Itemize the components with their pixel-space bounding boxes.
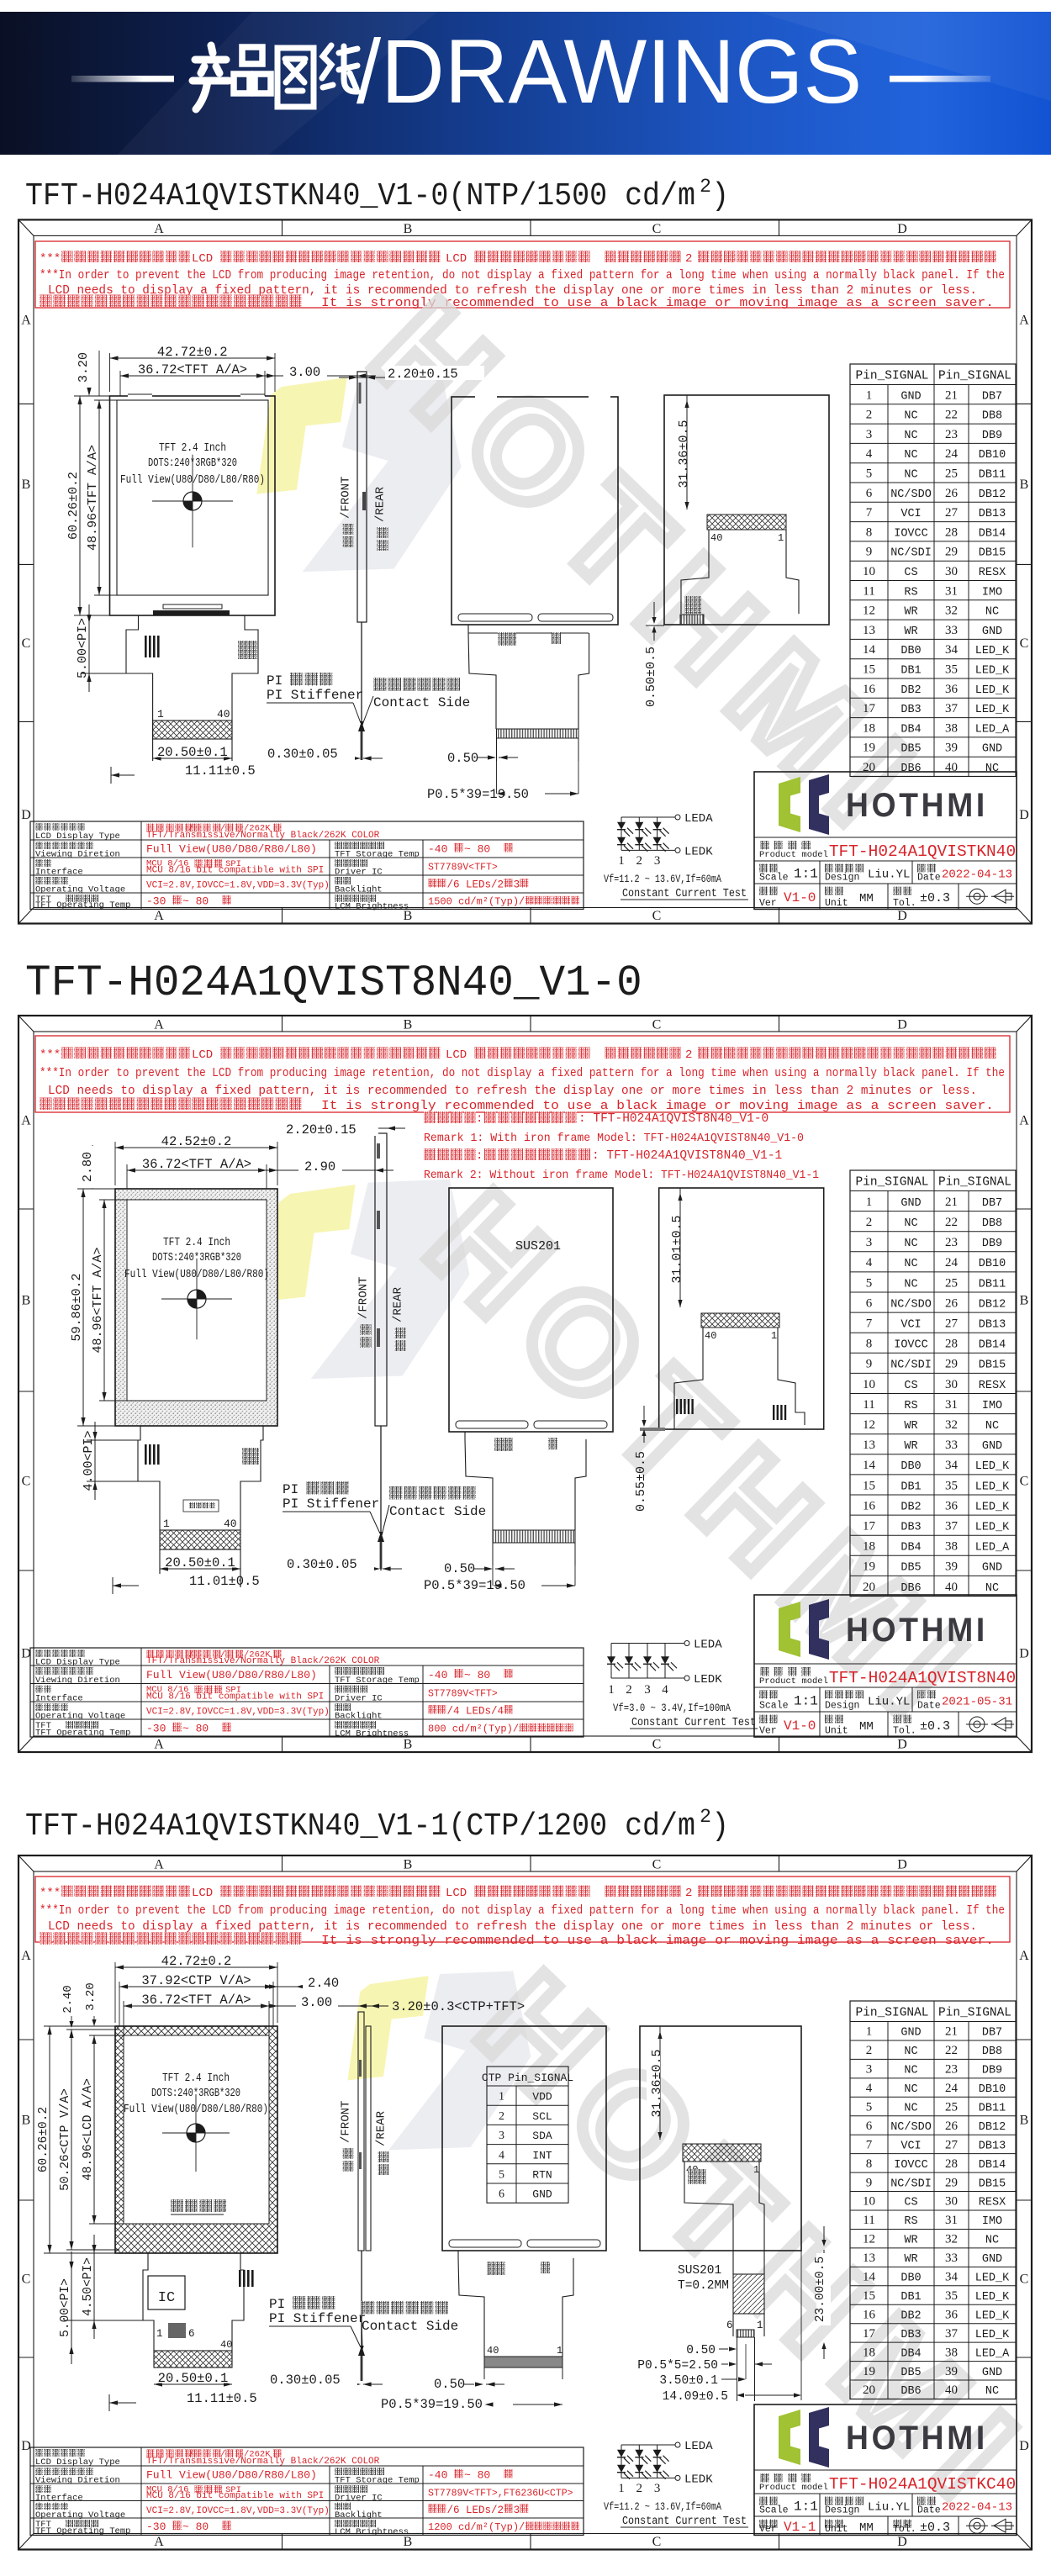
svg-text:B: B <box>404 1738 413 1752</box>
svg-text:B: B <box>22 2114 31 2128</box>
svg-text:MM: MM <box>859 2521 874 2535</box>
svg-text:2: 2 <box>685 252 692 266</box>
svg-text:INT: INT <box>532 2149 552 2162</box>
svg-text:GND: GND <box>982 743 1002 756</box>
svg-text:WR: WR <box>904 1440 917 1453</box>
svg-text:): ) <box>711 178 729 214</box>
svg-text:35: 35 <box>945 662 958 676</box>
svg-text:Product model: Product model <box>759 1676 828 1687</box>
svg-text:VCI: VCI <box>900 2140 921 2152</box>
svg-text:0.30±0.05: 0.30±0.05 <box>270 2373 341 2388</box>
svg-text:8: 8 <box>866 1338 873 1351</box>
svg-text:35: 35 <box>945 1479 958 1492</box>
svg-text:4: 4 <box>866 1256 873 1270</box>
svg-text:NC: NC <box>904 2083 917 2096</box>
svg-text::: : <box>476 1149 483 1163</box>
svg-text:DB2: DB2 <box>900 1501 921 1513</box>
svg-text:13: 13 <box>863 1438 875 1452</box>
svg-text:42.72±0.2: 42.72±0.2 <box>157 345 228 360</box>
svg-text:MM: MM <box>859 892 874 905</box>
svg-text:TFT 2.4 Inch: TFT 2.4 Inch <box>163 1236 230 1249</box>
svg-text:DB15: DB15 <box>979 547 1006 560</box>
svg-text:DB0: DB0 <box>900 2272 921 2285</box>
svg-text:28: 28 <box>945 1338 958 1351</box>
svg-text:LCM Brightness: LCM Brightness <box>335 1729 409 1739</box>
svg-text:Operating Voltage: Operating Voltage <box>35 2510 125 2521</box>
svg-text:36.72<TFT A/A>: 36.72<TFT A/A> <box>142 1157 251 1172</box>
svg-text:TFT/Transmissive/Normally Blac: TFT/Transmissive/Normally Black/262K COL… <box>146 1656 380 1666</box>
svg-text:28: 28 <box>945 525 958 539</box>
svg-text:D: D <box>21 2439 31 2453</box>
svg-text:A: A <box>154 2535 164 2549</box>
svg-text:IOVCC: IOVCC <box>894 1339 928 1352</box>
svg-text:LED_K: LED_K <box>975 1521 1010 1533</box>
svg-text:NC: NC <box>985 1582 999 1595</box>
svg-text:31: 31 <box>945 2214 958 2227</box>
svg-text:SUS201: SUS201 <box>515 1239 561 1254</box>
svg-text:3.00: 3.00 <box>289 365 320 380</box>
svg-text:TFT-H024A1QVIST8N40: TFT-H024A1QVIST8N40 <box>829 1669 1016 1687</box>
svg-text:D: D <box>21 808 31 822</box>
svg-text:LEDK: LEDK <box>684 2473 713 2486</box>
svg-text:B: B <box>22 478 31 492</box>
svg-text:25: 25 <box>945 2100 958 2114</box>
svg-text:Scale: Scale <box>759 873 789 884</box>
svg-text:23: 23 <box>945 428 958 441</box>
svg-text:2022-04-13: 2022-04-13 <box>942 2501 1012 2515</box>
svg-text:GND: GND <box>982 1440 1002 1453</box>
svg-text:Driver IC: Driver IC <box>335 1693 383 1703</box>
svg-text:0.50: 0.50 <box>434 2377 465 2392</box>
svg-text:21: 21 <box>945 388 958 402</box>
svg-text:11: 11 <box>863 1398 874 1412</box>
svg-text:1: 1 <box>557 2345 562 2357</box>
svg-text:35: 35 <box>945 2289 958 2303</box>
svg-text:Ver: Ver <box>759 2524 777 2535</box>
svg-text:RESX: RESX <box>979 1380 1006 1392</box>
svg-text:19: 19 <box>863 742 875 755</box>
svg-text:2: 2 <box>636 854 643 868</box>
svg-text:DB15: DB15 <box>979 2177 1006 2190</box>
svg-text:40: 40 <box>705 1330 716 1342</box>
svg-text:DB12: DB12 <box>979 2121 1006 2134</box>
svg-text:DB3: DB3 <box>900 1521 921 1533</box>
svg-text:31.36±0.5: 31.36±0.5 <box>650 2049 664 2117</box>
svg-text:LED_K: LED_K <box>975 684 1010 697</box>
svg-text:27: 27 <box>945 2138 959 2151</box>
svg-text:DB2: DB2 <box>900 684 921 697</box>
svg-text:NC: NC <box>904 430 917 442</box>
svg-text:DB5: DB5 <box>900 743 921 756</box>
svg-text:-40: -40 <box>428 1669 447 1681</box>
svg-text:8: 8 <box>866 525 873 539</box>
svg-text:26: 26 <box>945 1296 959 1310</box>
svg-text:Viewing Diretion: Viewing Diretion <box>35 850 120 860</box>
svg-text:38: 38 <box>945 721 958 735</box>
svg-text:Product model: Product model <box>759 2483 828 2493</box>
svg-text:3.00: 3.00 <box>301 1995 332 2010</box>
svg-text:***In order to prevent the LCD: ***In order to prevent the LCD from prod… <box>40 1066 1005 1080</box>
svg-text:6: 6 <box>866 2119 873 2133</box>
svg-text:Liu.YL: Liu.YL <box>868 868 910 882</box>
svg-text:2: 2 <box>685 1048 692 1062</box>
svg-text:ST7789V<TFT>: ST7789V<TFT> <box>428 1688 498 1699</box>
svg-text:TFT-H024A1QVIST8N40_V1-0: TFT-H024A1QVIST8N40_V1-0 <box>25 959 642 1009</box>
svg-text:/DRAWINGS: /DRAWINGS <box>356 21 862 123</box>
svg-text:/REAR: /REAR <box>375 2110 388 2146</box>
svg-text:VCI: VCI <box>900 1318 921 1331</box>
svg-text:LED_K: LED_K <box>975 1501 1010 1513</box>
svg-text:Constant Current Test: Constant Current Test <box>631 1717 756 1729</box>
svg-text:39: 39 <box>945 1560 958 1574</box>
svg-text:LED_K: LED_K <box>975 2329 1010 2341</box>
svg-text:20.50±0.1: 20.50±0.1 <box>158 2371 229 2386</box>
svg-text:Remark 2: Without iron frame M: Remark 2: Without iron frame Model: TFT-… <box>424 1169 819 1182</box>
svg-text:CTP Pin_SIGNAL: CTP Pin_SIGNAL <box>482 2072 573 2084</box>
svg-text:4: 4 <box>866 447 873 461</box>
svg-text:LCD: LCD <box>446 1048 467 1062</box>
svg-text:/6 LEDs/2: /6 LEDs/2 <box>447 879 504 891</box>
svg-text:5: 5 <box>866 2100 873 2114</box>
svg-text:NC: NC <box>904 1217 917 1230</box>
svg-text:B: B <box>404 1858 413 1872</box>
svg-text:1: 1 <box>757 2320 763 2331</box>
svg-text:A: A <box>21 313 31 327</box>
svg-text:C: C <box>652 222 662 236</box>
svg-text:LED_K: LED_K <box>975 1460 1010 1473</box>
svg-text:Ver: Ver <box>759 898 777 909</box>
svg-text:Design: Design <box>825 2505 859 2516</box>
svg-text:B: B <box>404 222 413 236</box>
svg-text:Pin_SIGNAL: Pin_SIGNAL <box>938 370 1011 383</box>
svg-text:±0.3: ±0.3 <box>920 2521 950 2535</box>
svg-text:2.80: 2.80 <box>81 1152 95 1182</box>
svg-text:: TFT-H024A1QVIST8N40_V1-1: : TFT-H024A1QVIST8N40_V1-1 <box>592 1149 782 1163</box>
svg-text:DB9: DB9 <box>982 430 1002 442</box>
svg-text:800 cd/m²(Typ)/: 800 cd/m²(Typ)/ <box>428 1723 519 1735</box>
svg-text:A: A <box>1019 1949 1029 1963</box>
svg-text:40: 40 <box>224 1518 237 1530</box>
svg-text:Scale: Scale <box>759 1701 789 1712</box>
svg-text:***: *** <box>40 252 61 266</box>
svg-text:Vf=11.2 ~ 13.6V,If=60mA: Vf=11.2 ~ 13.6V,If=60mA <box>604 2501 721 2513</box>
svg-text:3: 3 <box>866 2063 873 2077</box>
svg-text:3: 3 <box>654 2482 661 2495</box>
svg-text:***: *** <box>40 1887 61 1900</box>
svg-text:TFT-H024A1QVISTKN40: TFT-H024A1QVISTKN40 <box>829 842 1016 861</box>
svg-text:Contact Side: Contact Side <box>373 695 470 710</box>
svg-text:NC: NC <box>985 606 999 619</box>
svg-text:17: 17 <box>863 2327 876 2341</box>
svg-text:2: 2 <box>866 1216 873 1229</box>
svg-text:2.20±0.15: 2.20±0.15 <box>388 367 458 382</box>
svg-text:Interface: Interface <box>35 2493 83 2503</box>
svg-text:~ 80: ~ 80 <box>464 843 490 856</box>
svg-text:7: 7 <box>866 506 873 520</box>
svg-text:IOVCC: IOVCC <box>894 527 928 540</box>
svg-text:A: A <box>21 1949 31 1963</box>
svg-text:19: 19 <box>863 1560 875 1574</box>
svg-text:Liu.YL: Liu.YL <box>868 2501 910 2515</box>
svg-text:60.26±0.2: 60.26±0.2 <box>66 472 81 540</box>
svg-text:-30: -30 <box>146 1723 166 1735</box>
svg-text:IMO: IMO <box>982 1400 1002 1412</box>
svg-text:12: 12 <box>863 2233 875 2246</box>
svg-text:34: 34 <box>945 1459 959 1472</box>
svg-text:LCD: LCD <box>446 252 467 266</box>
svg-text:25: 25 <box>945 467 958 480</box>
svg-text:TFT Operating Temp: TFT Operating Temp <box>35 900 130 911</box>
svg-text:2022-04-13: 2022-04-13 <box>942 868 1012 882</box>
svg-text:3: 3 <box>654 854 661 868</box>
svg-text:Unit: Unit <box>825 2524 848 2535</box>
svg-text:Pin_SIGNAL: Pin_SIGNAL <box>855 1176 928 1190</box>
svg-text:DB6: DB6 <box>900 2385 921 2398</box>
svg-text:-30: -30 <box>146 2521 166 2533</box>
svg-text:13: 13 <box>863 2251 875 2265</box>
svg-text:DB9: DB9 <box>982 2065 1002 2077</box>
svg-text:TFT/Transmissive/Normally Blac: TFT/Transmissive/Normally Black/262K COL… <box>146 831 380 841</box>
svg-text:Tol.: Tol. <box>893 1726 916 1737</box>
svg-text:NC: NC <box>985 763 999 775</box>
svg-text:20: 20 <box>863 2383 875 2397</box>
svg-text:31: 31 <box>945 584 958 598</box>
svg-text:2: 2 <box>685 1887 692 1900</box>
svg-text:GND: GND <box>982 626 1002 638</box>
svg-text:0.50: 0.50 <box>444 1561 475 1576</box>
svg-text:2: 2 <box>866 2044 873 2057</box>
svg-text:WR: WR <box>904 606 917 619</box>
svg-text:DB10: DB10 <box>979 2083 1006 2096</box>
svg-text:6: 6 <box>866 1296 873 1310</box>
svg-text:C: C <box>1020 2272 1029 2287</box>
svg-text:11: 11 <box>863 584 874 598</box>
svg-text:LED_K: LED_K <box>975 2291 1010 2304</box>
svg-text:Remark 1: With iron frame Mode: Remark 1: With iron frame Model: TFT-H02… <box>424 1132 804 1145</box>
svg-text:HOTHMI: HOTHMI <box>846 2420 988 2457</box>
svg-text:C: C <box>22 1475 31 1489</box>
svg-text:1:1: 1:1 <box>794 867 818 882</box>
svg-text:PI Stiffener: PI Stiffener <box>267 688 363 703</box>
svg-text:Unit: Unit <box>825 1726 848 1737</box>
svg-text:32: 32 <box>945 1418 958 1432</box>
svg-text:LED_K: LED_K <box>975 1481 1010 1493</box>
svg-text:Backlight: Backlight <box>335 2510 383 2521</box>
svg-text:31.36±0.5: 31.36±0.5 <box>677 420 691 488</box>
svg-text:8: 8 <box>866 2157 873 2171</box>
svg-text:GND: GND <box>900 2027 921 2040</box>
svg-text:Operating Voltage: Operating Voltage <box>35 885 125 895</box>
svg-text:39: 39 <box>945 742 958 755</box>
svg-text:D: D <box>897 1858 907 1872</box>
svg-text:26: 26 <box>945 487 959 500</box>
svg-text:1: 1 <box>499 2091 504 2104</box>
svg-text:MCU 8/16 bit compatible with S: MCU 8/16 bit compatible with SPI <box>146 2491 324 2501</box>
svg-text:NC/SDO: NC/SDO <box>890 488 932 501</box>
svg-text:12: 12 <box>863 1418 875 1432</box>
svg-text:D: D <box>897 1018 907 1032</box>
svg-text:It is strongly recommended to: It is strongly recommended to use a blac… <box>321 1934 994 1948</box>
svg-text:LCD: LCD <box>192 1887 213 1900</box>
svg-text:IOVCC: IOVCC <box>894 2159 928 2172</box>
svg-text:B: B <box>1020 2114 1029 2128</box>
svg-text:14.09±0.5: 14.09±0.5 <box>663 2390 728 2404</box>
svg-text:22: 22 <box>945 409 958 422</box>
svg-text:1: 1 <box>163 1518 170 1530</box>
svg-text:19: 19 <box>863 2365 875 2378</box>
svg-text:1: 1 <box>618 2482 625 2495</box>
svg-text:34: 34 <box>945 643 959 657</box>
svg-text:32: 32 <box>945 604 958 618</box>
svg-text:LED_A: LED_A <box>975 1542 1010 1555</box>
svg-text:LCD needs to display a fixed p: LCD needs to display a fixed pattern, it… <box>48 1919 977 1934</box>
svg-text:P0.5*39=19.50: P0.5*39=19.50 <box>381 2397 483 2412</box>
svg-text:0.50±0.5: 0.50±0.5 <box>644 647 658 707</box>
svg-text:C: C <box>1020 636 1029 651</box>
svg-text:42.72±0.2: 42.72±0.2 <box>161 1954 232 1969</box>
svg-text:34: 34 <box>945 2271 959 2284</box>
svg-text:RS: RS <box>904 586 917 599</box>
svg-text:D: D <box>897 222 907 236</box>
svg-text:24: 24 <box>945 2082 959 2095</box>
svg-text:/REAR: /REAR <box>392 1286 405 1322</box>
svg-text:Constant Current Test: Constant Current Test <box>622 2515 747 2528</box>
svg-text:3.50±0.1: 3.50±0.1 <box>659 2374 718 2388</box>
svg-text:DB10: DB10 <box>979 1258 1006 1270</box>
svg-text:2: 2 <box>866 409 873 422</box>
svg-text:WR: WR <box>904 1420 917 1433</box>
svg-text:NC: NC <box>985 2385 999 2398</box>
svg-text:TFT Operating Temp: TFT Operating Temp <box>35 2526 130 2536</box>
svg-text:3: 3 <box>866 428 873 441</box>
svg-text:16: 16 <box>863 1499 876 1512</box>
svg-text:LED_K: LED_K <box>975 2309 1010 2322</box>
svg-text:48.96<TFT A/A>: 48.96<TFT A/A> <box>86 445 100 551</box>
svg-text:30: 30 <box>945 1378 958 1391</box>
svg-text:31.01±0.5: 31.01±0.5 <box>670 1215 684 1283</box>
svg-text:±0.3: ±0.3 <box>920 891 950 905</box>
svg-text:40: 40 <box>217 708 230 721</box>
svg-text:42.52±0.2: 42.52±0.2 <box>161 1134 232 1149</box>
svg-text:PI: PI <box>267 673 283 689</box>
svg-text:4: 4 <box>499 2149 504 2162</box>
svg-text:/FRONT: /FRONT <box>340 477 353 519</box>
svg-text:TFT 2.4 Inch: TFT 2.4 Inch <box>162 2072 230 2085</box>
svg-text:1:1: 1:1 <box>794 1694 818 1709</box>
svg-text:WR: WR <box>904 2235 917 2247</box>
svg-text:DB14: DB14 <box>979 527 1006 540</box>
svg-text:21: 21 <box>945 2025 958 2039</box>
svg-text:DB3: DB3 <box>900 704 921 716</box>
svg-text:DB1: DB1 <box>900 1481 921 1493</box>
svg-text:36.72<TFT A/A>: 36.72<TFT A/A> <box>138 362 247 377</box>
svg-text:NC: NC <box>904 468 917 481</box>
svg-text:SUS201: SUS201 <box>678 2264 721 2278</box>
svg-text:10: 10 <box>863 2195 875 2209</box>
svg-text:CS: CS <box>904 2197 917 2209</box>
svg-text:3: 3 <box>514 2505 520 2516</box>
svg-text:4.00<PI>: 4.00<PI> <box>82 1430 96 1491</box>
svg-text:VCI: VCI <box>900 508 921 520</box>
svg-text:/REAR: /REAR <box>374 486 388 522</box>
svg-text:~ 80: ~ 80 <box>182 2521 209 2533</box>
svg-text:0.50: 0.50 <box>686 2344 716 2357</box>
svg-text:TFT-H024A1QVISTKN40_V1-1(CTP/1: TFT-H024A1QVISTKN40_V1-1(CTP/1200 cd/m <box>25 1808 695 1845</box>
svg-text:Constant Current Test: Constant Current Test <box>622 888 747 900</box>
svg-text:~ 80: ~ 80 <box>464 2469 490 2482</box>
svg-text:Vf=11.2 ~ 13.6V,If=60mA: Vf=11.2 ~ 13.6V,If=60mA <box>604 874 721 885</box>
svg-text:LCM Brightness: LCM Brightness <box>335 902 409 912</box>
svg-text:16: 16 <box>863 683 876 696</box>
svg-text:2: 2 <box>700 1806 711 1828</box>
svg-text:HOTHMI: HOTHMI <box>846 1612 988 1650</box>
svg-text:48.96<LCD A/A>: 48.96<LCD A/A> <box>82 2078 95 2181</box>
svg-text:SDA: SDA <box>532 2130 552 2142</box>
svg-text:±0.3: ±0.3 <box>920 1719 950 1734</box>
svg-text:CS: CS <box>904 567 917 579</box>
svg-text:DB7: DB7 <box>982 390 1002 403</box>
svg-text:CS: CS <box>904 1380 917 1392</box>
svg-text:GND: GND <box>982 2253 1002 2266</box>
svg-text:WR: WR <box>904 626 917 638</box>
svg-text:C: C <box>1020 1475 1029 1489</box>
svg-text:33: 33 <box>945 624 958 637</box>
svg-text:/4 LEDs/4: /4 LEDs/4 <box>447 1706 504 1718</box>
svg-text:1500 cd/m²(Typ)/: 1500 cd/m²(Typ)/ <box>428 896 525 908</box>
svg-text:6: 6 <box>866 487 873 500</box>
svg-text:36: 36 <box>945 2308 959 2321</box>
svg-text:12: 12 <box>863 604 875 618</box>
svg-text:18: 18 <box>863 1540 875 1554</box>
svg-text:TFT-H024A1QVISTKC40: TFT-H024A1QVISTKC40 <box>829 2475 1016 2494</box>
svg-text:C: C <box>652 1018 662 1032</box>
svg-text:RESX: RESX <box>979 2197 1006 2209</box>
svg-text:: TFT-H024A1QVIST8N40_V1-0: : TFT-H024A1QVIST8N40_V1-0 <box>578 1112 768 1126</box>
svg-text:V1-0: V1-0 <box>784 1718 816 1734</box>
svg-text:Full View(U80/D80/R80/L80): Full View(U80/D80/R80/L80) <box>146 843 317 856</box>
svg-text:): ) <box>711 1808 729 1845</box>
svg-text:1: 1 <box>778 532 784 544</box>
svg-text:GND: GND <box>982 1562 1002 1575</box>
svg-text:DB1: DB1 <box>900 2291 921 2304</box>
svg-text:21: 21 <box>945 1196 958 1209</box>
svg-text:DB8: DB8 <box>982 410 1002 423</box>
svg-text:14: 14 <box>863 2271 876 2284</box>
svg-text:LCM Brightness: LCM Brightness <box>335 2527 409 2537</box>
svg-text:A: A <box>154 1738 164 1752</box>
svg-text:23: 23 <box>945 2063 958 2077</box>
svg-text:11.11±0.5: 11.11±0.5 <box>185 763 256 779</box>
svg-text:17: 17 <box>863 1519 876 1533</box>
svg-text:4.50<PI>: 4.50<PI> <box>82 2257 95 2316</box>
svg-text:23.00±0.5: 23.00±0.5 <box>814 2257 827 2322</box>
svg-text:36: 36 <box>945 683 959 696</box>
svg-text:37: 37 <box>945 702 959 715</box>
svg-text:~ 80: ~ 80 <box>182 1723 209 1735</box>
svg-text:2: 2 <box>700 176 711 198</box>
svg-text:40: 40 <box>945 2383 958 2397</box>
svg-text:MCU 8/16 bit compatible with S: MCU 8/16 bit compatible with SPI <box>146 866 324 876</box>
svg-text:16: 16 <box>863 2308 876 2321</box>
svg-text:TFT Operating Temp: TFT Operating Temp <box>35 1729 130 1739</box>
svg-text:10: 10 <box>863 1378 875 1391</box>
svg-text:C: C <box>22 2272 31 2287</box>
svg-text:IC: IC <box>158 2290 175 2306</box>
svg-text:B: B <box>22 1294 31 1308</box>
svg-text:2: 2 <box>499 2110 504 2123</box>
svg-text:2: 2 <box>636 2482 643 2495</box>
svg-text:DB6: DB6 <box>900 1582 921 1595</box>
